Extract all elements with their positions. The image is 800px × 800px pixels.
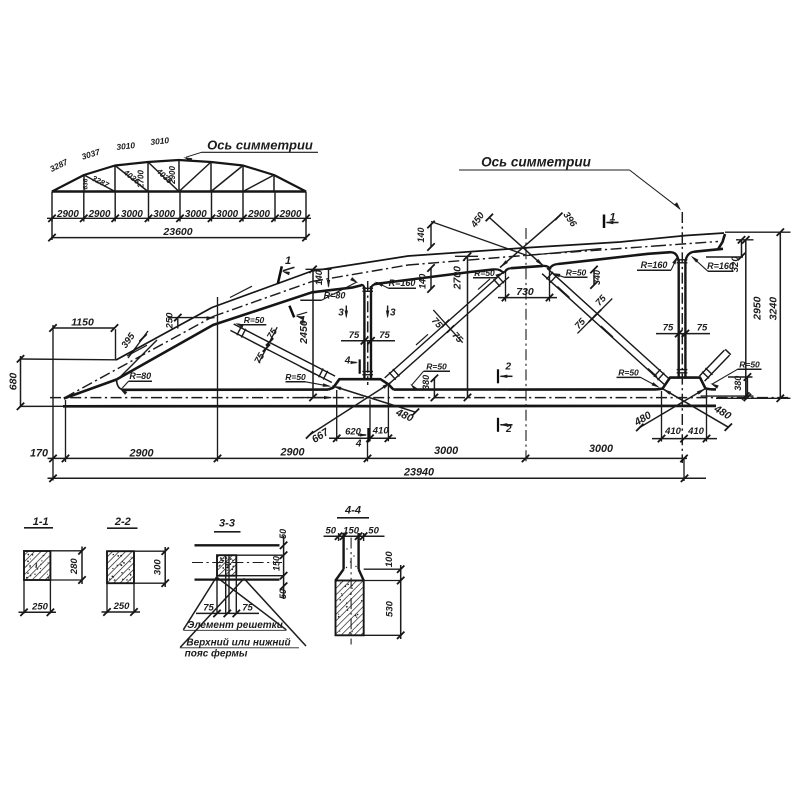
svg-text:R=80: R=80 bbox=[129, 371, 151, 381]
svg-text:140: 140 bbox=[314, 270, 324, 285]
svg-text:пояс фермы: пояс фермы bbox=[185, 648, 248, 660]
svg-text:75: 75 bbox=[379, 330, 390, 341]
svg-text:75: 75 bbox=[349, 330, 360, 341]
svg-text:3240: 3240 bbox=[767, 297, 779, 321]
svg-text:R=160: R=160 bbox=[641, 260, 668, 270]
svg-text:250: 250 bbox=[31, 602, 49, 613]
svg-text:2900: 2900 bbox=[247, 209, 270, 220]
svg-text:380: 380 bbox=[733, 376, 743, 391]
svg-text:3000: 3000 bbox=[434, 445, 458, 457]
svg-text:4: 4 bbox=[355, 439, 362, 450]
svg-text:250: 250 bbox=[113, 601, 131, 612]
svg-text:636: 636 bbox=[83, 178, 90, 189]
svg-text:R=50: R=50 bbox=[426, 362, 447, 372]
svg-text:3000: 3000 bbox=[589, 443, 613, 455]
svg-text:2900: 2900 bbox=[279, 209, 302, 220]
svg-text:R=50: R=50 bbox=[566, 267, 587, 277]
svg-text:50: 50 bbox=[278, 589, 288, 599]
svg-text:680: 680 bbox=[8, 373, 20, 391]
svg-text:2900: 2900 bbox=[168, 166, 177, 185]
svg-text:170: 170 bbox=[30, 447, 48, 459]
svg-text:50: 50 bbox=[326, 525, 337, 536]
svg-text:2: 2 bbox=[505, 361, 512, 372]
svg-text:23940: 23940 bbox=[403, 466, 434, 478]
svg-text:2700: 2700 bbox=[451, 266, 463, 291]
svg-text:3000: 3000 bbox=[121, 209, 143, 220]
svg-text:2-2: 2-2 bbox=[114, 516, 131, 528]
svg-text:250: 250 bbox=[164, 312, 175, 330]
svg-text:2900: 2900 bbox=[128, 448, 153, 460]
svg-text:Ось симметрии: Ось симметрии bbox=[481, 155, 592, 170]
svg-text:R=50: R=50 bbox=[474, 268, 495, 278]
svg-text:R=50: R=50 bbox=[739, 359, 760, 369]
svg-text:300: 300 bbox=[153, 559, 164, 576]
svg-text:3010: 3010 bbox=[150, 135, 170, 147]
svg-text:2900: 2900 bbox=[88, 209, 111, 220]
svg-text:140: 140 bbox=[416, 227, 426, 242]
svg-text:Ось симметрии: Ось симметрии bbox=[207, 138, 313, 153]
svg-text:Верхний или нижний: Верхний или нижний bbox=[186, 638, 290, 649]
svg-text:R=50: R=50 bbox=[285, 372, 306, 382]
svg-text:R=50: R=50 bbox=[618, 368, 639, 378]
svg-text:2700: 2700 bbox=[137, 170, 146, 189]
svg-text:R=50: R=50 bbox=[244, 315, 265, 325]
svg-text:410: 410 bbox=[687, 426, 705, 437]
svg-text:320: 320 bbox=[730, 256, 741, 273]
svg-text:2: 2 bbox=[505, 424, 512, 435]
svg-text:1-1: 1-1 bbox=[33, 516, 49, 528]
svg-text:4: 4 bbox=[344, 355, 351, 366]
svg-text:140: 140 bbox=[417, 274, 427, 289]
svg-text:3: 3 bbox=[338, 308, 344, 319]
svg-text:530: 530 bbox=[385, 600, 396, 617]
svg-text:3000: 3000 bbox=[185, 209, 207, 220]
svg-text:1: 1 bbox=[299, 315, 305, 327]
svg-text:R=160: R=160 bbox=[389, 278, 416, 288]
svg-text:150: 150 bbox=[271, 556, 281, 571]
svg-text:3010: 3010 bbox=[116, 140, 136, 152]
svg-text:2950: 2950 bbox=[752, 296, 764, 321]
svg-text:2900: 2900 bbox=[279, 447, 304, 459]
svg-text:50: 50 bbox=[368, 525, 379, 536]
svg-text:2900: 2900 bbox=[56, 209, 79, 220]
svg-text:100: 100 bbox=[384, 551, 395, 568]
svg-text:3-3: 3-3 bbox=[219, 517, 235, 529]
svg-text:23600: 23600 bbox=[162, 226, 192, 238]
svg-text:3: 3 bbox=[390, 308, 396, 319]
svg-text:150: 150 bbox=[343, 525, 360, 536]
svg-text:75: 75 bbox=[663, 323, 674, 334]
svg-text:410: 410 bbox=[664, 426, 682, 437]
svg-text:380: 380 bbox=[421, 375, 431, 390]
svg-text:1: 1 bbox=[609, 212, 615, 224]
svg-text:4-4: 4-4 bbox=[344, 504, 361, 516]
svg-text:280: 280 bbox=[69, 558, 80, 576]
svg-text:1150: 1150 bbox=[71, 316, 94, 328]
svg-text:3000: 3000 bbox=[216, 209, 238, 220]
svg-text:R=80: R=80 bbox=[324, 290, 346, 300]
svg-text:410: 410 bbox=[372, 426, 390, 437]
svg-text:75: 75 bbox=[697, 323, 708, 334]
svg-text:1: 1 bbox=[285, 255, 291, 267]
svg-text:340: 340 bbox=[592, 270, 602, 285]
svg-text:730: 730 bbox=[516, 286, 534, 298]
svg-text:50: 50 bbox=[278, 529, 288, 539]
svg-text:3000: 3000 bbox=[153, 209, 175, 220]
